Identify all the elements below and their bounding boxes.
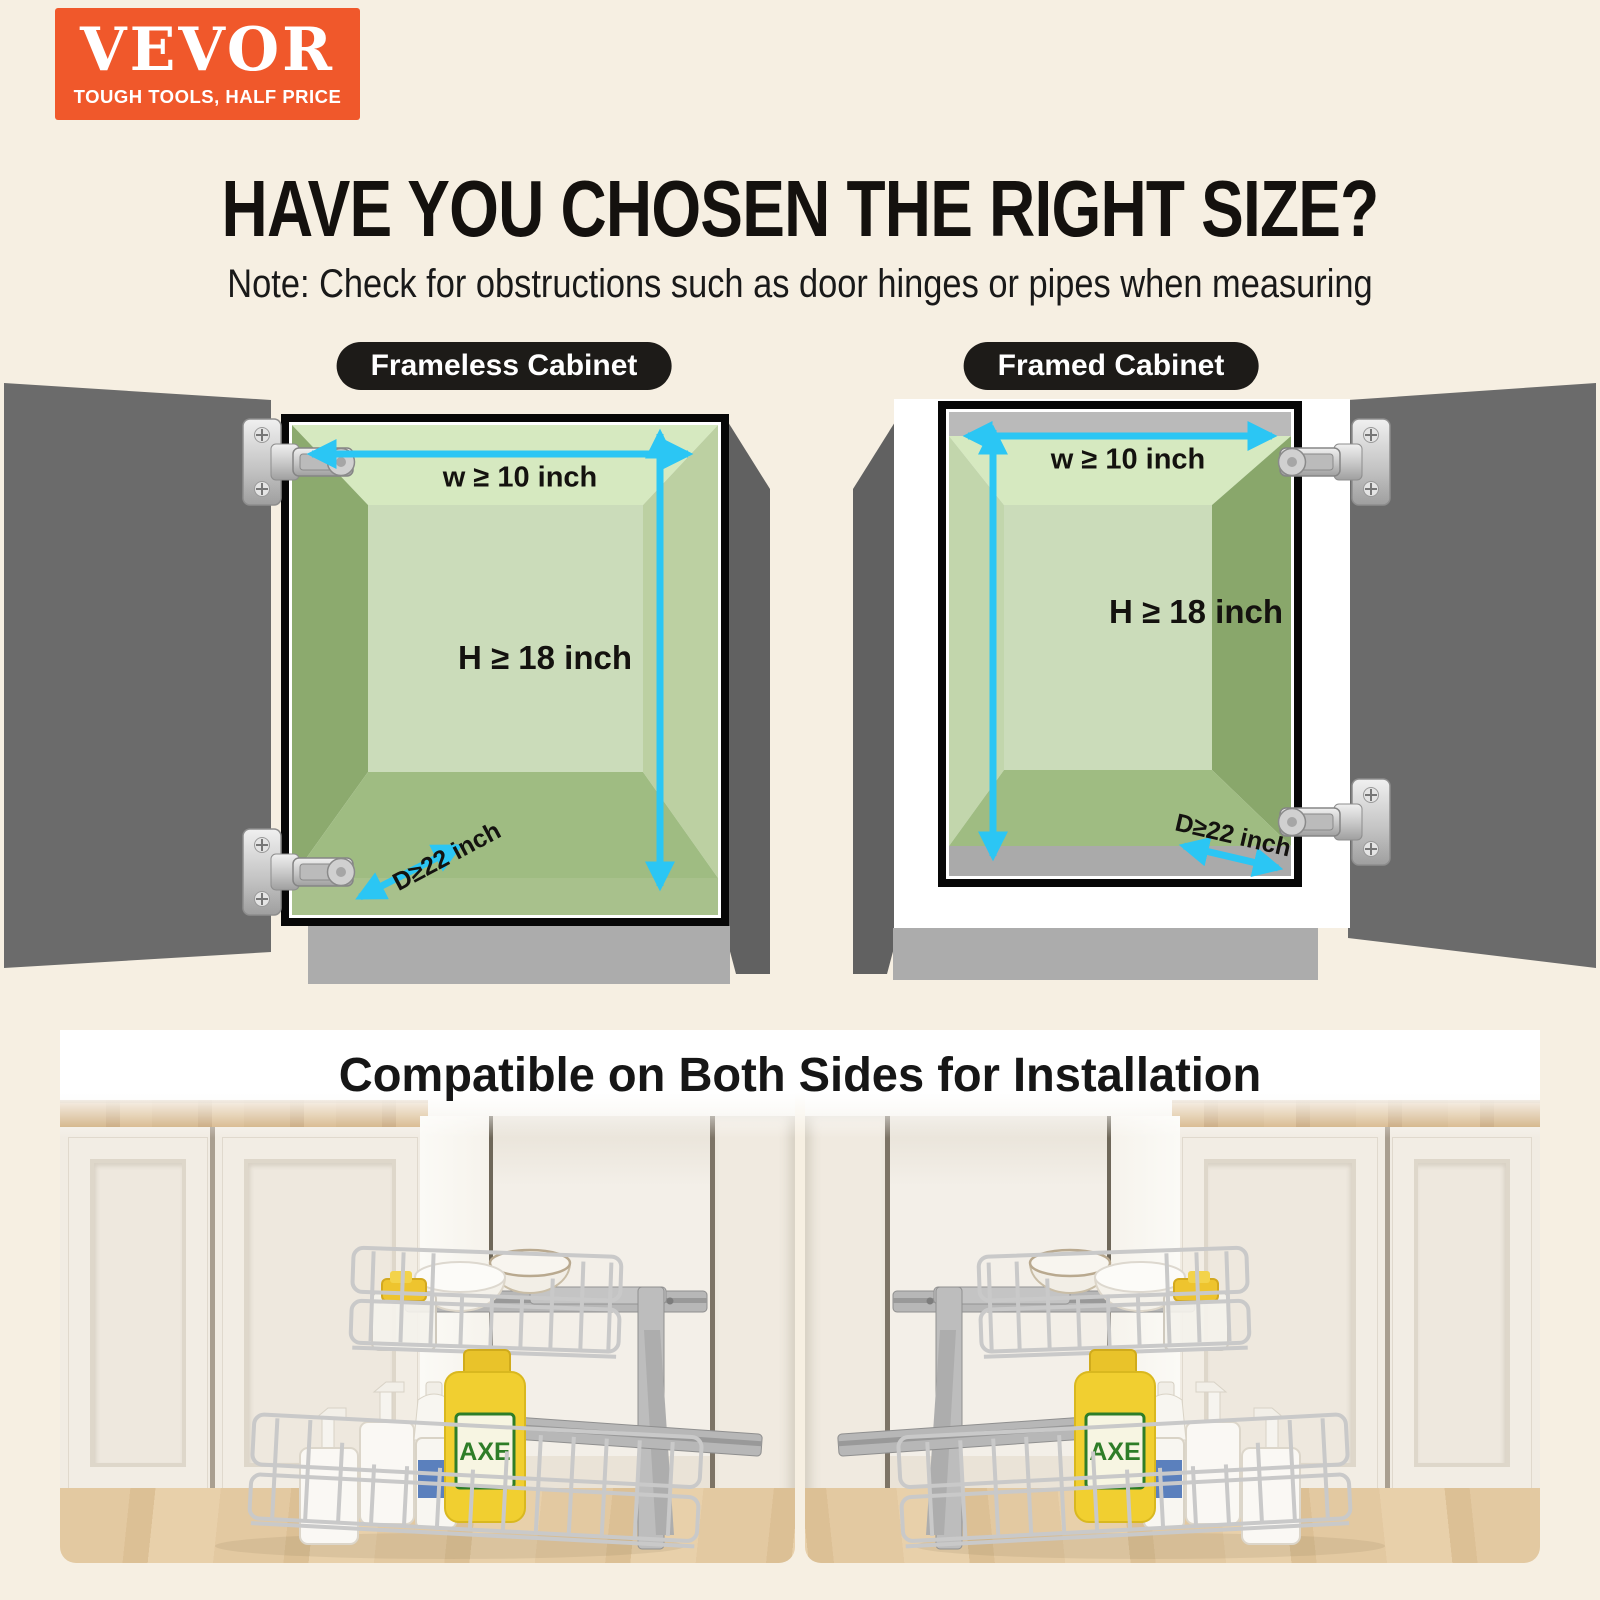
frameless-cabinet-diagram [4,383,770,984]
axe-bottle: AXE [445,1350,525,1522]
photo-right-installation: AXE [805,1030,1540,1563]
frameless-width-label: w ≥ 10 inch [443,462,598,495]
framed-interior [949,412,1291,876]
framed-arrows [968,430,1278,868]
framed-width-label: w ≥ 10 inch [1051,444,1206,477]
frameless-plinth [308,926,730,984]
framed-side-wall [853,414,900,974]
framed-plinth [893,928,1318,980]
framed-cabinet-label: Framed Cabinet [964,342,1259,390]
frameless-depth-label: D≥22 inch [388,817,506,898]
installation-title: Compatible on Both Sides for Installatio… [16,1048,1584,1103]
brand-tagline: TOUGH TOOLS, HALF PRICE [74,86,342,108]
frameless-side-wall [723,414,770,974]
page-title: HAVE YOU CHOSEN THE RIGHT SIZE? [160,163,1440,255]
pullout-basket-graphic: AXE [805,1030,1540,1563]
hinge-icon [1279,419,1391,505]
photo-left-installation: AXE [60,1030,795,1563]
page-note: Note: Check for obstructions such as doo… [112,262,1488,307]
hinge-icon [1279,779,1391,865]
axe-bottle-label: AXE [459,1438,510,1466]
frameless-open-door [4,383,271,968]
framed-height-label: H ≥ 18 inch [1109,593,1283,631]
brand-name: VEVOR [80,20,335,80]
frameless-height-label: H ≥ 18 inch [458,639,632,677]
hinge-icon [243,419,355,505]
infographic-canvas: VEVOR TOUGH TOOLS, HALF PRICE HAVE YOU C… [0,0,1600,1600]
framed-cabinet-diagram [853,383,1596,980]
framed-open-door [1348,383,1596,968]
pullout-basket-graphic: AXE [60,1030,795,1563]
axe-bottle-label: AXE [1089,1438,1140,1466]
axe-bottle: AXE [1075,1350,1155,1522]
cabinet-diagrams-graphic [0,0,1600,1030]
frameless-cabinet-label: Frameless Cabinet [337,342,672,390]
hinge-icon [243,829,355,915]
framed-depth-label: D≥22 inch [1172,809,1293,864]
brand-logo: VEVOR TOUGH TOOLS, HALF PRICE [55,8,360,120]
